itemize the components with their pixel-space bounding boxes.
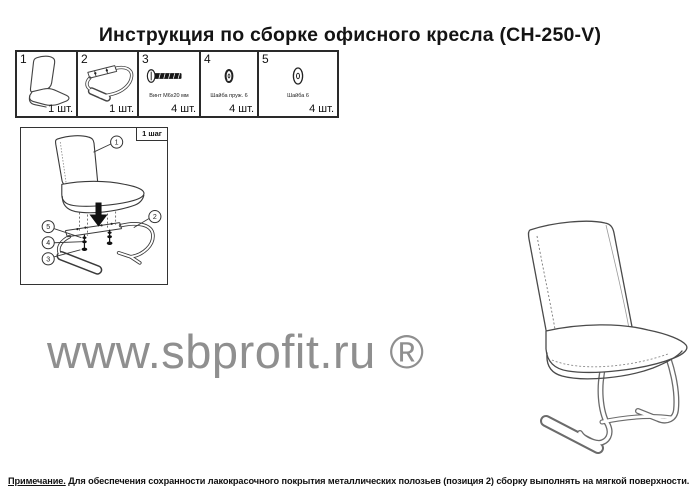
parts-cell-4: 4 Шайба пруж. 6 4 шт. <box>201 52 259 116</box>
parts-cell-5: 5 Шайба 6 4 шт. <box>259 52 337 116</box>
part-3-label: Винт М6х20 мм <box>139 93 199 99</box>
callout-3-marker: 3 <box>42 253 54 265</box>
footnote-lead: Примечание. <box>8 476 66 486</box>
part-2-quantity: 1 шт. <box>109 103 134 115</box>
callout-1-marker: 1 <box>111 136 123 148</box>
instruction-page: { "title": "Инструкция по сборке офисног… <box>0 0 700 500</box>
page-title: Инструкция по сборке офисного кресла (CH… <box>0 24 700 47</box>
step-label: 1 шаг <box>136 128 167 141</box>
part-4-quantity: 4 шт. <box>229 103 254 115</box>
screw-icon <box>139 62 199 90</box>
callout-3-number: 3 <box>46 256 50 263</box>
parts-cell-3: 3 Винт М6х20 мм 4 шт. <box>139 52 201 116</box>
footnote-body: Для обеспечения сохранности лакокрасочно… <box>66 476 689 486</box>
footnote: Примечание. Для обеспечения сохранности … <box>8 476 700 486</box>
spring-washer-icon <box>201 62 257 90</box>
parts-cell-1: 1 1 шт. <box>17 52 78 116</box>
flat-washer-icon <box>259 62 337 90</box>
callout-5-marker: 5 <box>42 221 54 233</box>
part-5-label: Шайба 6 <box>259 93 337 99</box>
base-frame-part-icon <box>78 60 137 102</box>
part-4-label: Шайба пруж. 6 <box>201 93 257 99</box>
callout-2-marker: 2 <box>149 211 161 223</box>
callout-5-number: 5 <box>46 224 50 231</box>
part-5-quantity: 4 шт. <box>309 103 334 115</box>
callout-1-number: 1 <box>115 140 119 147</box>
parts-table: 1 1 шт. 2 <box>15 50 339 118</box>
seat-back-part-icon <box>17 60 76 102</box>
part-1-quantity: 1 шт. <box>48 103 73 115</box>
screw-washer-stack <box>82 230 113 251</box>
callout-2-number: 2 <box>153 214 157 221</box>
callout-4-marker: 4 <box>42 237 54 249</box>
watermark: www.sbprofit.ru ® <box>47 324 424 379</box>
part-3-quantity: 4 шт. <box>171 103 196 115</box>
assembled-chair-drawing <box>486 214 692 464</box>
assembly-step-diagram: 1 2 5 4 3 1 шаг <box>20 127 168 285</box>
seat-back-exploded <box>56 136 144 213</box>
assembly-exploded-view: 1 2 5 4 3 <box>21 128 167 284</box>
callout-4-number: 4 <box>46 240 50 247</box>
parts-cell-2: 2 1 шт. <box>78 52 139 116</box>
